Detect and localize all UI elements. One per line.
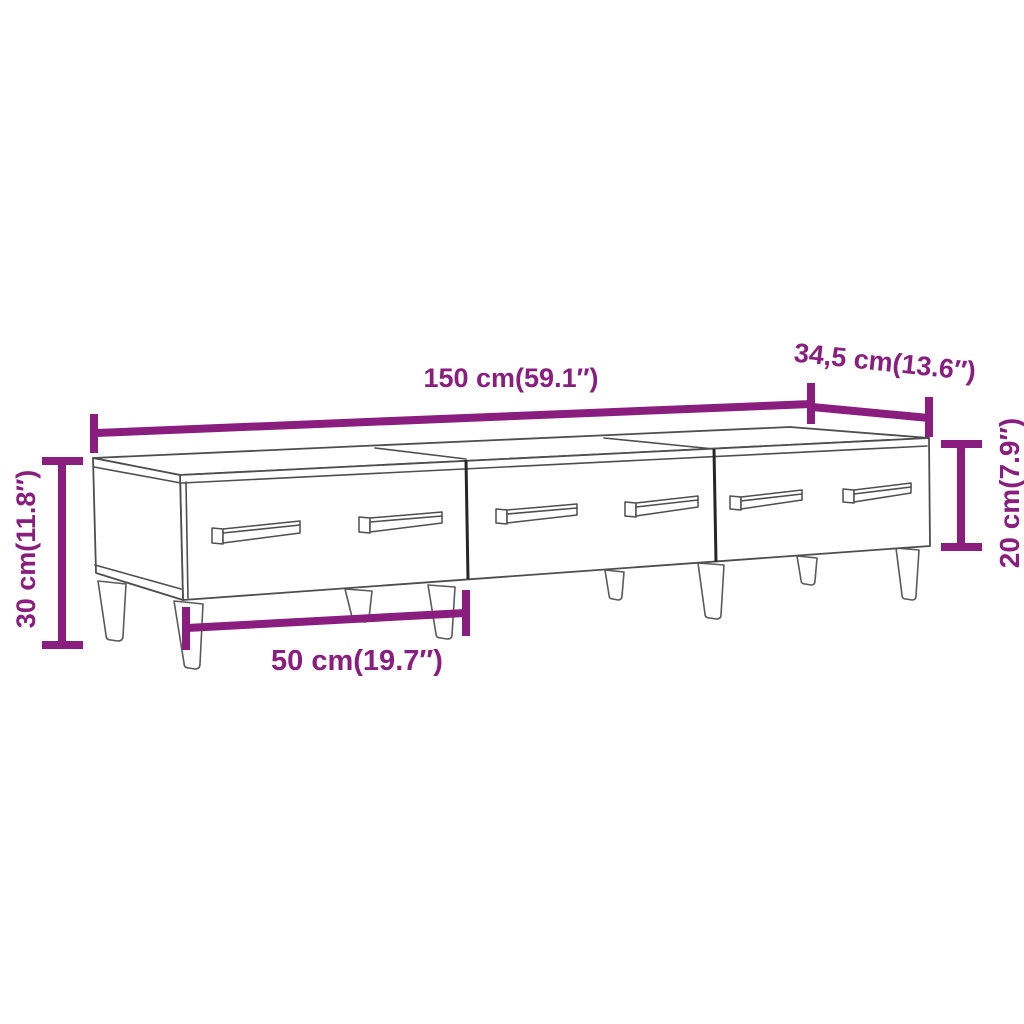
drawer-divider xyxy=(466,460,468,579)
tv-cabinet-dimension-diagram: 150 cm(59.1″) 34,5 cm(13.6″) 30 cm(11.8″… xyxy=(0,0,1024,1024)
diagram-canvas: 150 cm(59.1″) 34,5 cm(13.6″) 30 cm(11.8″… xyxy=(0,0,1024,1024)
dimension-line xyxy=(96,404,811,433)
dimension-line xyxy=(812,407,929,418)
drawer-width-dimension-label: 50 cm(19.7″) xyxy=(271,645,443,677)
cabinet-leg xyxy=(605,570,624,600)
cabinet-drawing xyxy=(93,427,930,669)
depth-dimension-label: 34,5 cm(13.6″) xyxy=(793,338,978,387)
dimension-line xyxy=(187,613,465,628)
drawer-height-dimension: 20 cm(7.9″) xyxy=(941,418,1024,568)
drawer-divider xyxy=(714,449,716,562)
drawer-height-dimension-label: 20 cm(7.9″) xyxy=(994,418,1024,568)
cabinet-leg xyxy=(698,563,724,619)
cabinet-leg xyxy=(797,556,817,585)
drawer-width-dimension: 50 cm(19.7″) xyxy=(186,590,466,677)
height-dimension-label: 30 cm(11.8″) xyxy=(11,470,41,629)
cabinet-leg xyxy=(896,548,919,600)
width-dimension-label: 150 cm(59.1″) xyxy=(423,363,598,393)
height-dimension: 30 cm(11.8″) xyxy=(11,461,83,645)
cabinet-leg xyxy=(98,581,126,641)
cabinet-side-panel xyxy=(93,458,183,600)
depth-dimension: 34,5 cm(13.6″) xyxy=(793,338,978,437)
